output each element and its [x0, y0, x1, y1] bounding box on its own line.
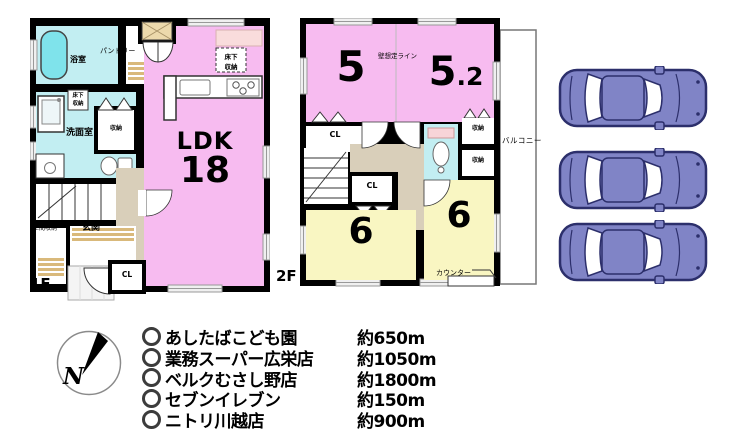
room-label-cl-1f: CL	[112, 271, 142, 279]
nearby-facilities-list: あしたばこども園 約650m 業務スーパー広栄店 約1050m ベルクむさし野店…	[142, 326, 436, 430]
room-label-storage-b: 収納	[462, 158, 494, 165]
floor-label-2f: 2F	[276, 268, 297, 285]
toilet-icon	[433, 142, 449, 166]
bathtub-icon	[41, 31, 67, 79]
kitchen-back-counter	[216, 30, 262, 46]
floor-label-1f: 1F	[30, 276, 51, 293]
facility-row: セブンイレブン 約150m	[142, 388, 436, 409]
facility-row: あしたばこども園 約650m	[142, 326, 436, 347]
room-label-cl-top: CL	[306, 131, 364, 140]
label-underfloor-storage: 床下 収納	[68, 92, 88, 109]
facility-distance: 約900m	[357, 407, 425, 432]
facility-row: ニトリ川越店 約900m	[142, 409, 436, 430]
room-label-pantry: パントリー	[100, 48, 135, 56]
vanity-icon	[36, 154, 64, 178]
room-label-doma: 土間収納	[33, 226, 57, 233]
facility-bullet-icon	[142, 348, 161, 367]
stairs-icon	[304, 148, 348, 204]
label-counter: カウンター	[436, 270, 471, 278]
toilet-room	[424, 124, 458, 180]
washing-machine-icon	[38, 96, 64, 132]
sink-icon	[180, 80, 210, 95]
compass-north-label: N	[63, 364, 84, 389]
1f-door-gap	[138, 190, 146, 216]
car-top-view	[558, 220, 708, 284]
facility-bullet-icon	[142, 389, 161, 408]
facility-row: ベルクむさし野店 約1800m	[142, 368, 436, 389]
facility-row: 業務スーパー広栄店 約1050m	[142, 347, 436, 368]
room-label-6-left: 6	[306, 212, 416, 252]
car-top-view	[558, 66, 708, 130]
label-balcony: バルコニー	[502, 137, 542, 145]
car-top-view	[558, 148, 708, 212]
label-underfloor-storage-ldk: 床下 収納	[216, 52, 246, 73]
room-label-storage-a: 収納	[462, 126, 494, 133]
2f-balcony	[500, 30, 536, 284]
room-label-cl-mid: CL	[352, 182, 392, 191]
room-label-5-2: 5.2	[420, 50, 492, 94]
floorplan-image: 浴室 パントリー 床下 収納 床下 収納 洗面室 収納 LDK 18 土間収納 …	[0, 0, 740, 446]
stairs-icon	[36, 184, 116, 220]
room-label-entrance: 玄関	[82, 224, 100, 234]
room-label-5: 5	[306, 44, 396, 90]
facility-bullet-icon	[142, 410, 161, 429]
facility-bullet-icon	[142, 327, 161, 346]
room-label-washroom: 洗面室	[66, 129, 93, 139]
room-label-6-right: 6	[424, 196, 494, 236]
label-assumed-wall-line: 壁想定ライン	[378, 53, 417, 60]
room-label-bath: 浴室	[70, 56, 86, 65]
facility-bullet-icon	[142, 368, 161, 387]
facility-name: ニトリ川越店	[165, 407, 357, 432]
room-label-ldk: LDK 18	[150, 128, 260, 189]
room-label-storage-1f: 収納	[98, 126, 134, 133]
porch-icon	[68, 266, 114, 300]
